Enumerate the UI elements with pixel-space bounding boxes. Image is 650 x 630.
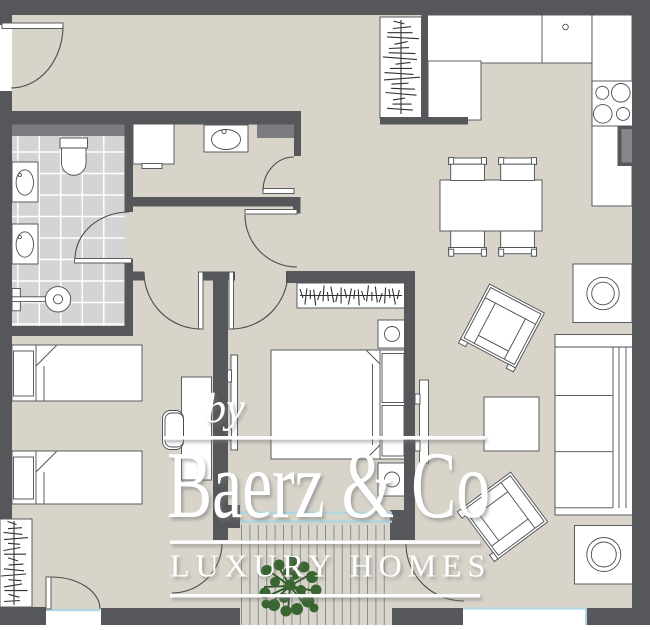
svg-text:LUXURY HOMES: LUXURY HOMES [170,548,491,584]
svg-text:Baerz & Co: Baerz & Co [167,433,490,538]
svg-text:by: by [205,386,245,432]
